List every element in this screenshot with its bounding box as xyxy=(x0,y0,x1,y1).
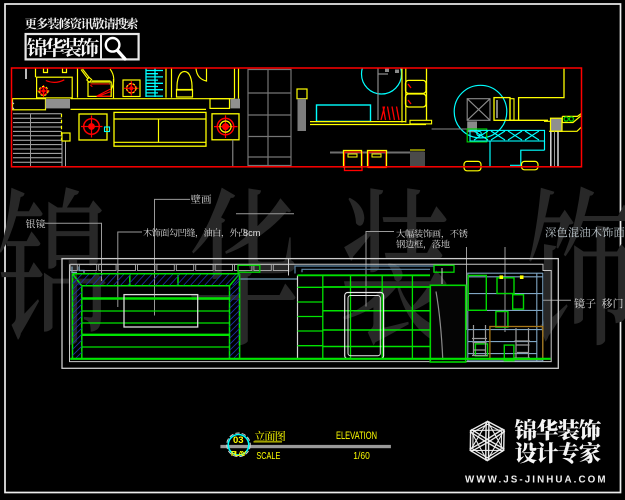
svg-text:1/60: 1/60 xyxy=(353,451,370,462)
svg-text:WWW.JS-JINHUA.COM: WWW.JS-JINHUA.COM xyxy=(465,474,606,485)
svg-text:PLAY: PLAY xyxy=(231,449,247,458)
svg-text:SCALE: SCALE xyxy=(256,451,280,462)
svg-text:03: 03 xyxy=(233,435,244,446)
svg-text:8cm: 8cm xyxy=(243,228,261,238)
svg-text:ELEVATION: ELEVATION xyxy=(336,430,377,442)
